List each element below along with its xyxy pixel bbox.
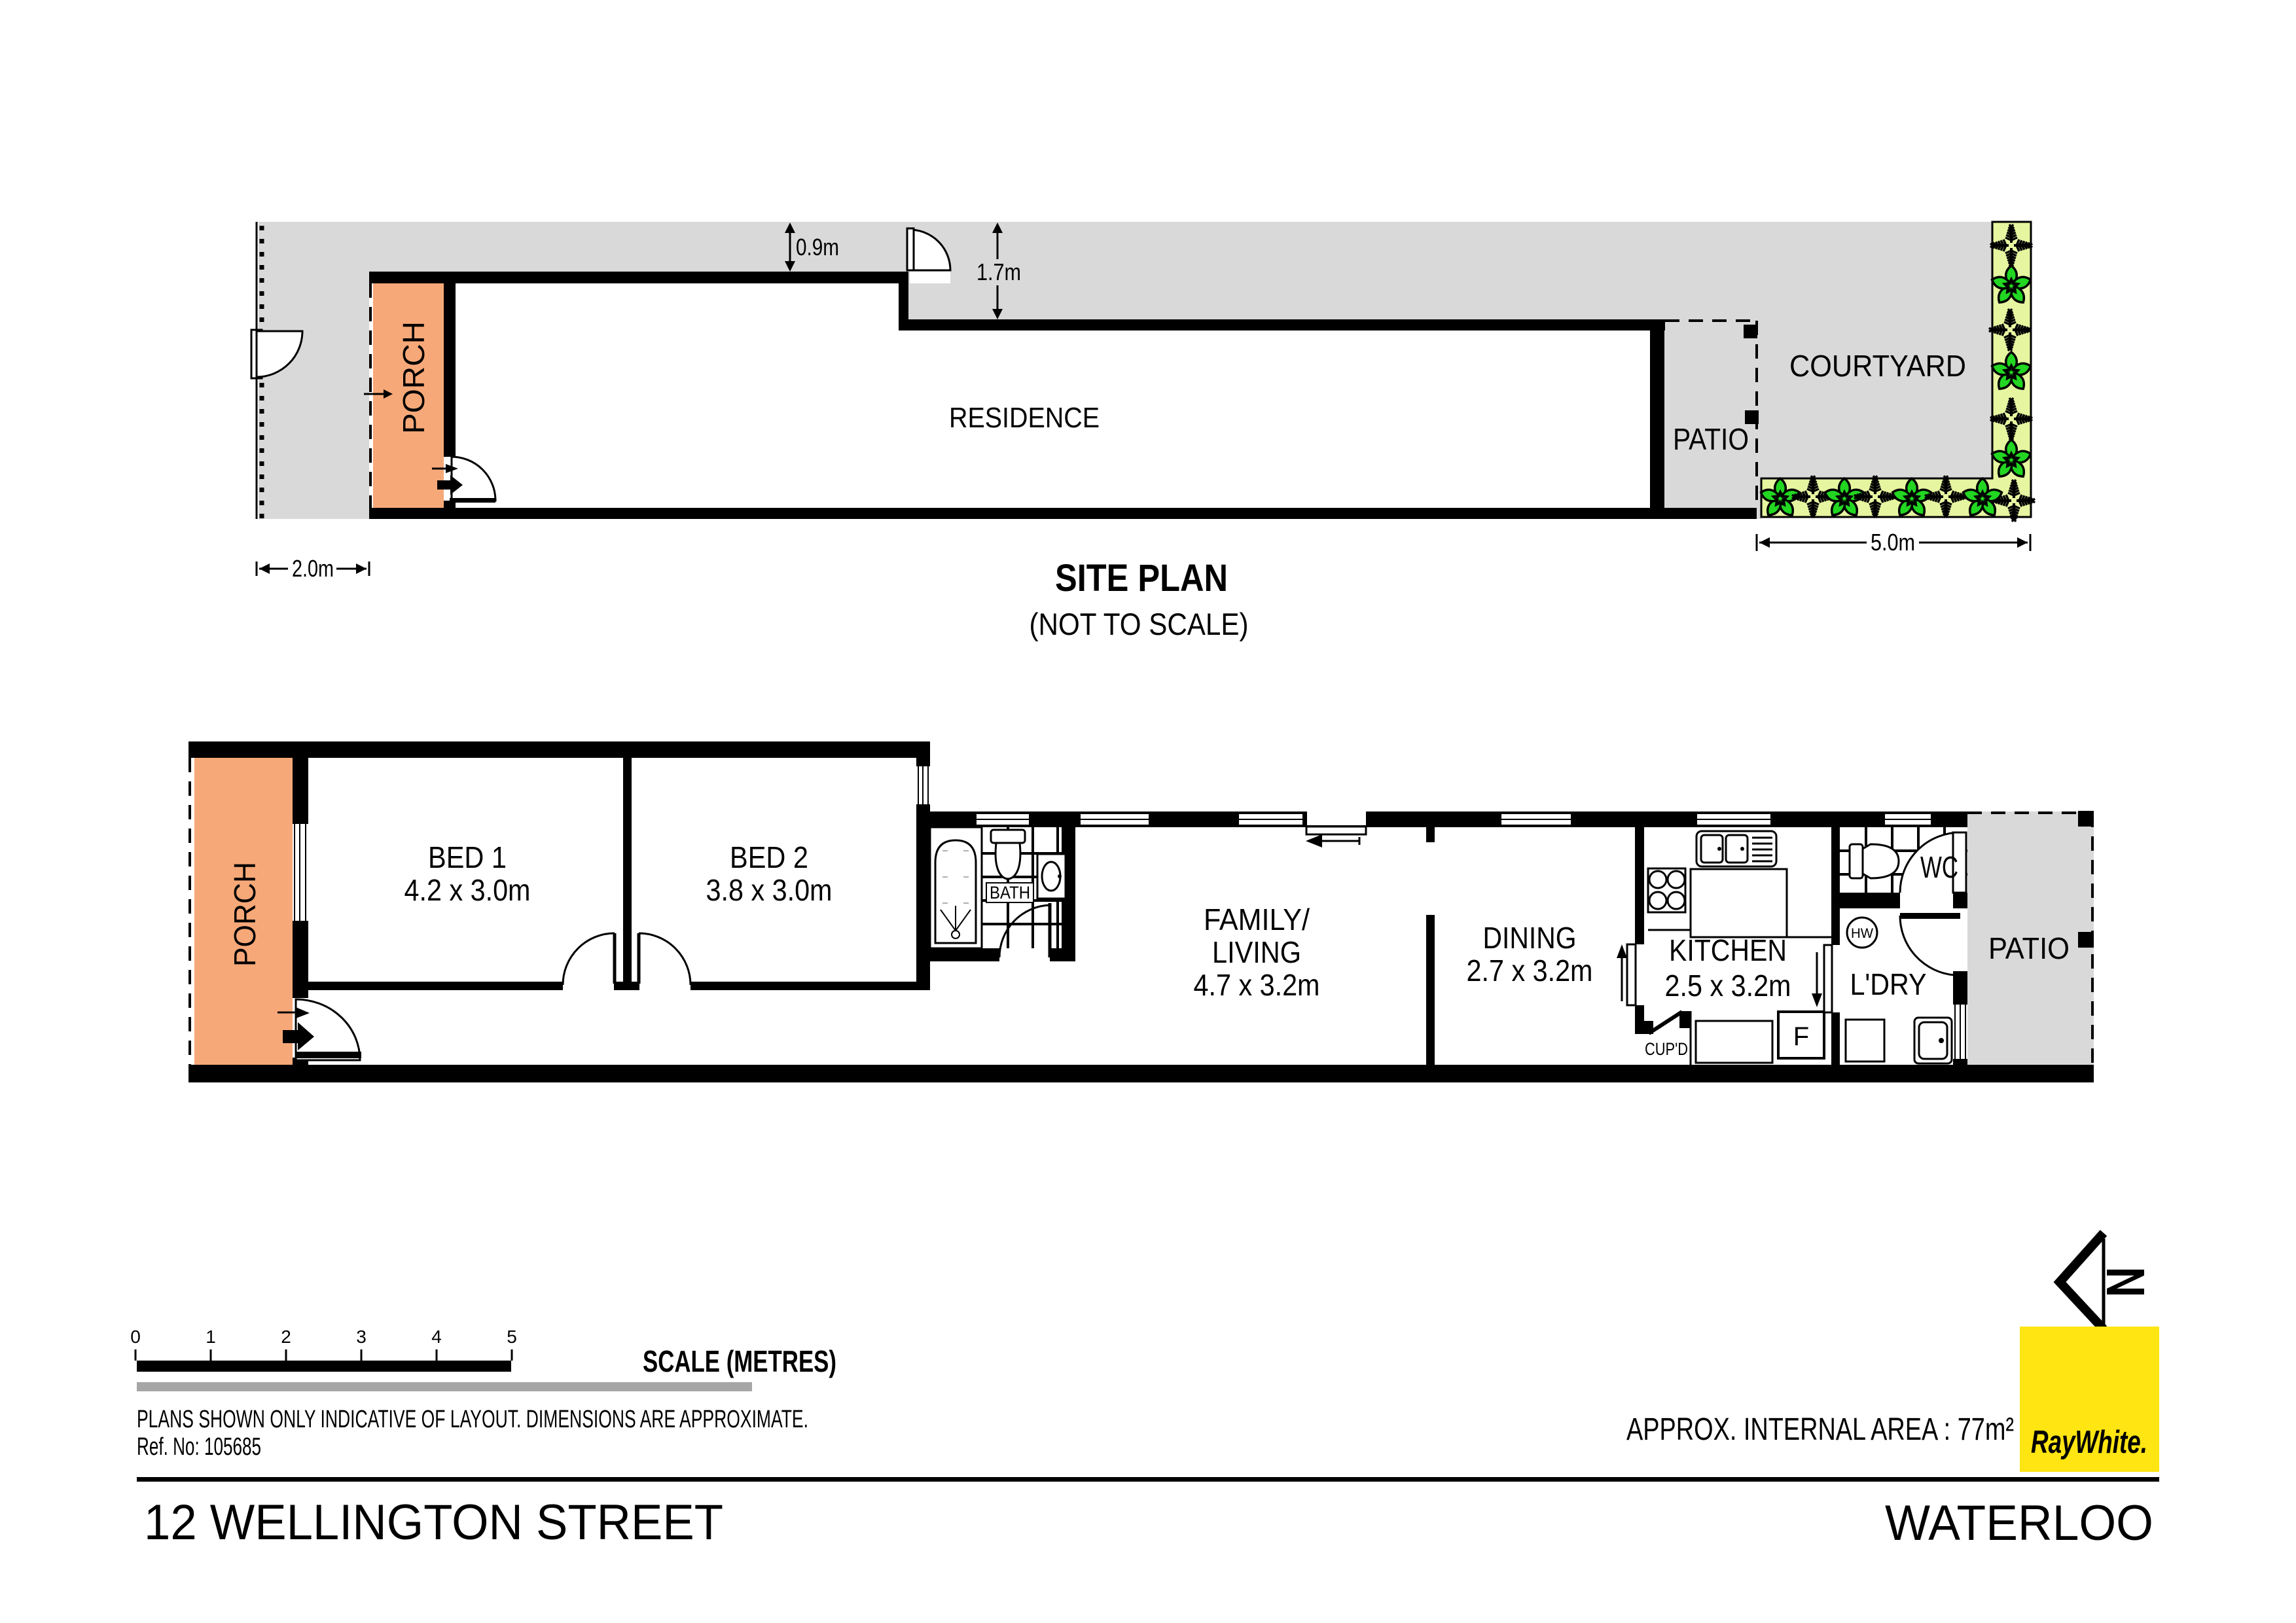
svg-text:COURTYARD: COURTYARD (1789, 349, 1966, 383)
svg-text:0.9m: 0.9m (796, 234, 839, 260)
svg-text:LIVING: LIVING (1212, 935, 1301, 969)
svg-text:12 WELLINGTON STREET: 12 WELLINGTON STREET (144, 1495, 723, 1550)
svg-text:FAMILY/: FAMILY/ (1204, 902, 1310, 936)
svg-text:PLANS SHOWN ONLY INDICATIVE OF: PLANS SHOWN ONLY INDICATIVE OF LAYOUT. D… (137, 1406, 808, 1433)
svg-text:WATERLOO: WATERLOO (1885, 1495, 2153, 1551)
svg-text:3: 3 (356, 1327, 367, 1347)
svg-text:Ref. No: 105685: Ref. No: 105685 (137, 1433, 261, 1461)
svg-text:F: F (1793, 1022, 1809, 1051)
svg-text:4.7 x 3.2m: 4.7 x 3.2m (1194, 968, 1320, 1002)
svg-text:RESIDENCE: RESIDENCE (949, 402, 1100, 434)
svg-text:5: 5 (507, 1327, 517, 1347)
svg-text:2: 2 (281, 1327, 291, 1347)
svg-text:WC: WC (1920, 850, 1958, 884)
svg-text:L'DRY: L'DRY (1850, 967, 1927, 1001)
svg-text:DINING: DINING (1483, 921, 1577, 955)
svg-text:PORCH: PORCH (397, 321, 431, 434)
svg-text:BATH: BATH (990, 883, 1030, 902)
svg-text:2.7 x 3.2m: 2.7 x 3.2m (1467, 954, 1593, 988)
svg-text:SITE PLAN: SITE PLAN (1055, 557, 1228, 599)
svg-text:(NOT TO SCALE): (NOT TO SCALE) (1030, 607, 1249, 641)
svg-text:APPROX. INTERNAL AREA : 77m²: APPROX. INTERNAL AREA : 77m² (1626, 1412, 2014, 1447)
svg-text:PORCH: PORCH (228, 862, 262, 967)
svg-text:PATIO: PATIO (1673, 422, 1749, 456)
svg-text:PATIO: PATIO (1988, 931, 2070, 965)
svg-text:KITCHEN: KITCHEN (1669, 933, 1787, 967)
svg-text:SCALE (METRES): SCALE (METRES) (643, 1344, 836, 1378)
svg-text:1: 1 (206, 1327, 216, 1347)
svg-text:CUP'D: CUP'D (1645, 1039, 1688, 1059)
svg-text:2.0m: 2.0m (292, 555, 334, 582)
svg-text:2.5 x 3.2m: 2.5 x 3.2m (1665, 969, 1791, 1003)
svg-text:RayWhite.: RayWhite. (2031, 1425, 2147, 1460)
svg-text:HW: HW (1851, 926, 1873, 941)
svg-text:BED 2: BED 2 (730, 840, 808, 874)
svg-text:3.8 x 3.0m: 3.8 x 3.0m (706, 873, 833, 907)
svg-text:1.7m: 1.7m (977, 259, 1021, 285)
svg-text:4.2 x 3.0m: 4.2 x 3.0m (404, 873, 531, 907)
svg-text:BED 1: BED 1 (428, 840, 507, 874)
svg-text:4: 4 (431, 1327, 442, 1347)
svg-text:5.0m: 5.0m (1871, 529, 1915, 556)
svg-text:0: 0 (130, 1327, 141, 1347)
